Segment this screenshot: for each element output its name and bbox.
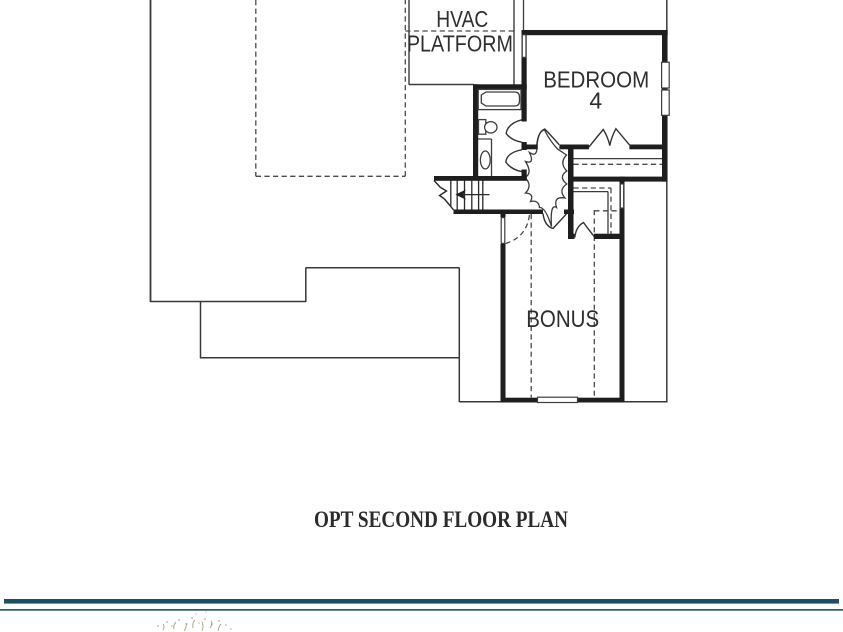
svg-text:HVAC: HVAC bbox=[436, 6, 488, 32]
svg-text:4: 4 bbox=[589, 88, 602, 114]
svg-text:OPT SECOND FLOOR PLAN: OPT SECOND FLOOR PLAN bbox=[314, 507, 568, 533]
svg-text:PLATFORM: PLATFORM bbox=[407, 31, 513, 57]
svg-text:BONUS: BONUS bbox=[526, 306, 599, 333]
